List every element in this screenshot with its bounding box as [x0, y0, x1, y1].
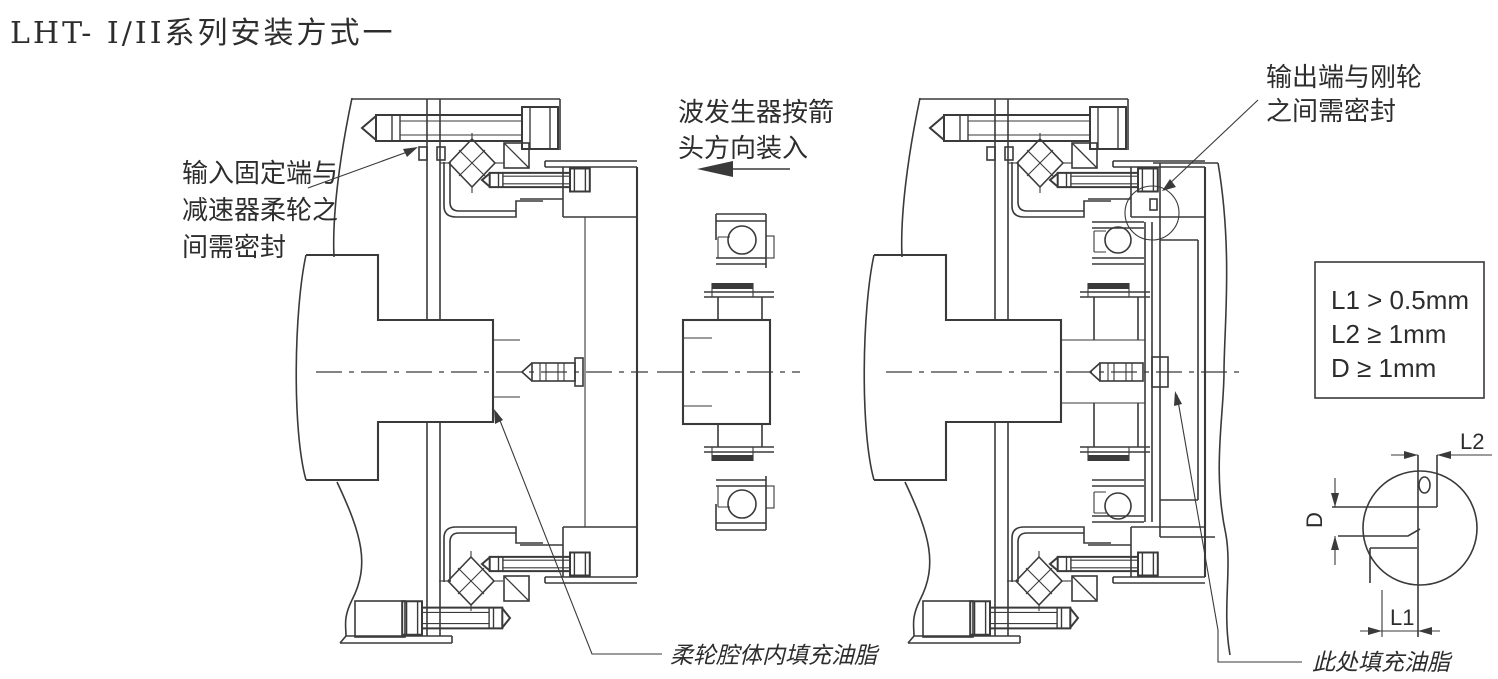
bearing-cage-section [1072, 576, 1097, 601]
input-seal-label-line3: 间需密封 [182, 232, 286, 262]
input-seal-label-line1: 输入固定端与 [182, 158, 338, 188]
oring-seal [437, 147, 445, 160]
bottom-cap-screw [970, 601, 1078, 635]
inner-cap-screw [1050, 552, 1158, 575]
bearing-cage-section [504, 576, 529, 601]
dim-label-d: D [1302, 512, 1327, 528]
annotation-input-seal: 输入固定端与 减速器柔轮之 间需密封 [182, 147, 418, 262]
flexspline-cup-lower [1012, 527, 1131, 582]
output-seal-label-line1: 输出端与刚轮 [1266, 62, 1422, 92]
left-arrow-icon [697, 161, 733, 177]
spec-line-d: D ≥ 1mm [1331, 353, 1436, 383]
assembly-drawing: 输入固定端与 减速器柔轮之 间需密封 波发生器按箭 头方向装入 输出端与刚轮 之… [0, 0, 1498, 679]
dim-label-l1: L1 [1390, 605, 1414, 630]
install-direction-arrow [697, 161, 790, 177]
leader-arrowhead [494, 409, 503, 424]
dim-label-l2: L2 [1460, 429, 1484, 454]
bearing-ball [728, 226, 756, 254]
flexspline-diaphragm [427, 99, 440, 636]
leader-arrowhead [1162, 179, 1176, 191]
input-seal-label-line2: 减速器柔轮之 [182, 195, 338, 225]
oring-seal [419, 147, 427, 160]
flexspline-cup-upper [444, 162, 563, 217]
output-seal-label-line2: 之间需密封 [1266, 96, 1396, 126]
annotation-flexspline-grease: 柔轮腔体内填充油脂 [494, 409, 880, 669]
dim-arrowhead [1331, 493, 1339, 507]
dim-arrowhead [1404, 451, 1418, 459]
bearing-ball [1105, 493, 1131, 519]
oring-seal [987, 147, 995, 160]
wave-generator-label-line2: 头方向装入 [678, 133, 808, 163]
input-shaft [874, 255, 1061, 480]
input-shaft [306, 255, 493, 480]
leader-arrowhead [403, 147, 418, 157]
left-assembly-reducer-section [296, 98, 648, 643]
dim-arrowhead [1368, 627, 1382, 635]
dim-arrowhead [1437, 451, 1451, 459]
annotation-output-seal: 输出端与刚轮 之间需密封 [1162, 62, 1422, 191]
cross-roller-bearing [1007, 551, 1071, 611]
flexspline-cup-upper [1012, 162, 1131, 217]
annotation-wave-generator: 波发生器按箭 头方向装入 [678, 97, 834, 163]
flexspline-grease-label: 柔轮腔体内填充油脂 [670, 643, 880, 669]
right-assembly-installed [864, 98, 1240, 655]
wave-generator-label-line1: 波发生器按箭 [678, 97, 834, 127]
output-oring-seal [1150, 199, 1157, 210]
inner-cap-screw [482, 552, 590, 575]
bearing-cage-section [1072, 143, 1097, 168]
bearing-ball [728, 490, 756, 518]
diagram-canvas: LHT- I/II系列安装方式一 [0, 0, 1498, 679]
bearing-ball [1105, 227, 1131, 253]
dim-arrowhead [1331, 536, 1339, 550]
spec-line-l2: L2 ≥ 1mm [1331, 319, 1446, 349]
grease-here-label: 此处填充油脂 [1312, 650, 1453, 676]
leader-arrowhead [1174, 391, 1182, 406]
bottom-cap-screw [402, 601, 510, 635]
spec-box: L1 > 0.5mm L2 ≥ 1mm D ≥ 1mm [1315, 262, 1484, 398]
dim-arrowhead [1418, 627, 1432, 635]
spec-line-l1: L1 > 0.5mm [1331, 285, 1469, 315]
bearing-cage-section [504, 143, 529, 168]
wave-generator-part [657, 214, 800, 530]
flexspline-diaphragm [995, 99, 1008, 636]
oring-seal [1005, 147, 1013, 160]
seal-gap-detail-view: L2 D L1 [1302, 429, 1492, 637]
inner-cap-screw [482, 168, 590, 191]
cross-roller-bearing [439, 551, 503, 611]
oring-section [1419, 477, 1430, 493]
